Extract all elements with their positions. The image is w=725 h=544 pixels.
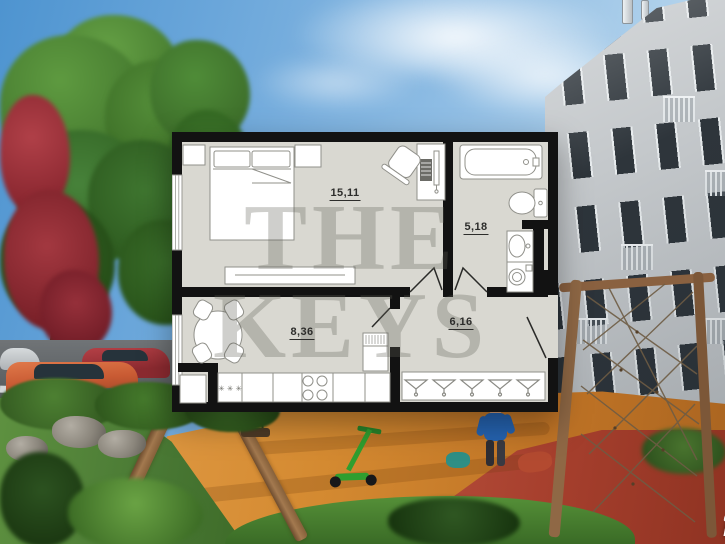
washing-machine <box>507 262 533 292</box>
watermark: THE KEYS <box>213 194 489 370</box>
pillow <box>214 151 250 167</box>
hob-symbol: ✳ ✳ ✳ <box>218 384 242 393</box>
pillow <box>252 151 290 167</box>
nightstand <box>183 145 205 165</box>
window <box>172 175 182 250</box>
desk-lamp <box>434 151 439 185</box>
room-area-label-bedroom: 15,11 <box>330 187 361 201</box>
bush-dark <box>388 498 520 544</box>
watermark-line1: THE <box>213 194 489 282</box>
bathtub <box>460 145 542 179</box>
toy-teal <box>446 452 470 468</box>
room-area-label-kitchen: 8,36 <box>289 326 314 340</box>
listing-image: ✳ ✳ ✳ THE KEYS 15,11 5,18 <box>0 0 725 544</box>
roof-chimney <box>622 0 633 24</box>
climbing-net-structure <box>545 252 725 544</box>
room-area-label-hallway: 6,16 <box>448 316 473 330</box>
cloud <box>250 55 420 110</box>
room-area-label-bathroom: 5,18 <box>463 221 488 235</box>
sink <box>507 231 533 262</box>
entry-opening <box>544 295 558 358</box>
floor-plan: ✳ ✳ ✳ THE KEYS 15,11 5,18 <box>172 132 558 412</box>
wardrobe <box>295 145 321 167</box>
duct-cabinet <box>180 375 206 403</box>
rock <box>98 430 146 458</box>
